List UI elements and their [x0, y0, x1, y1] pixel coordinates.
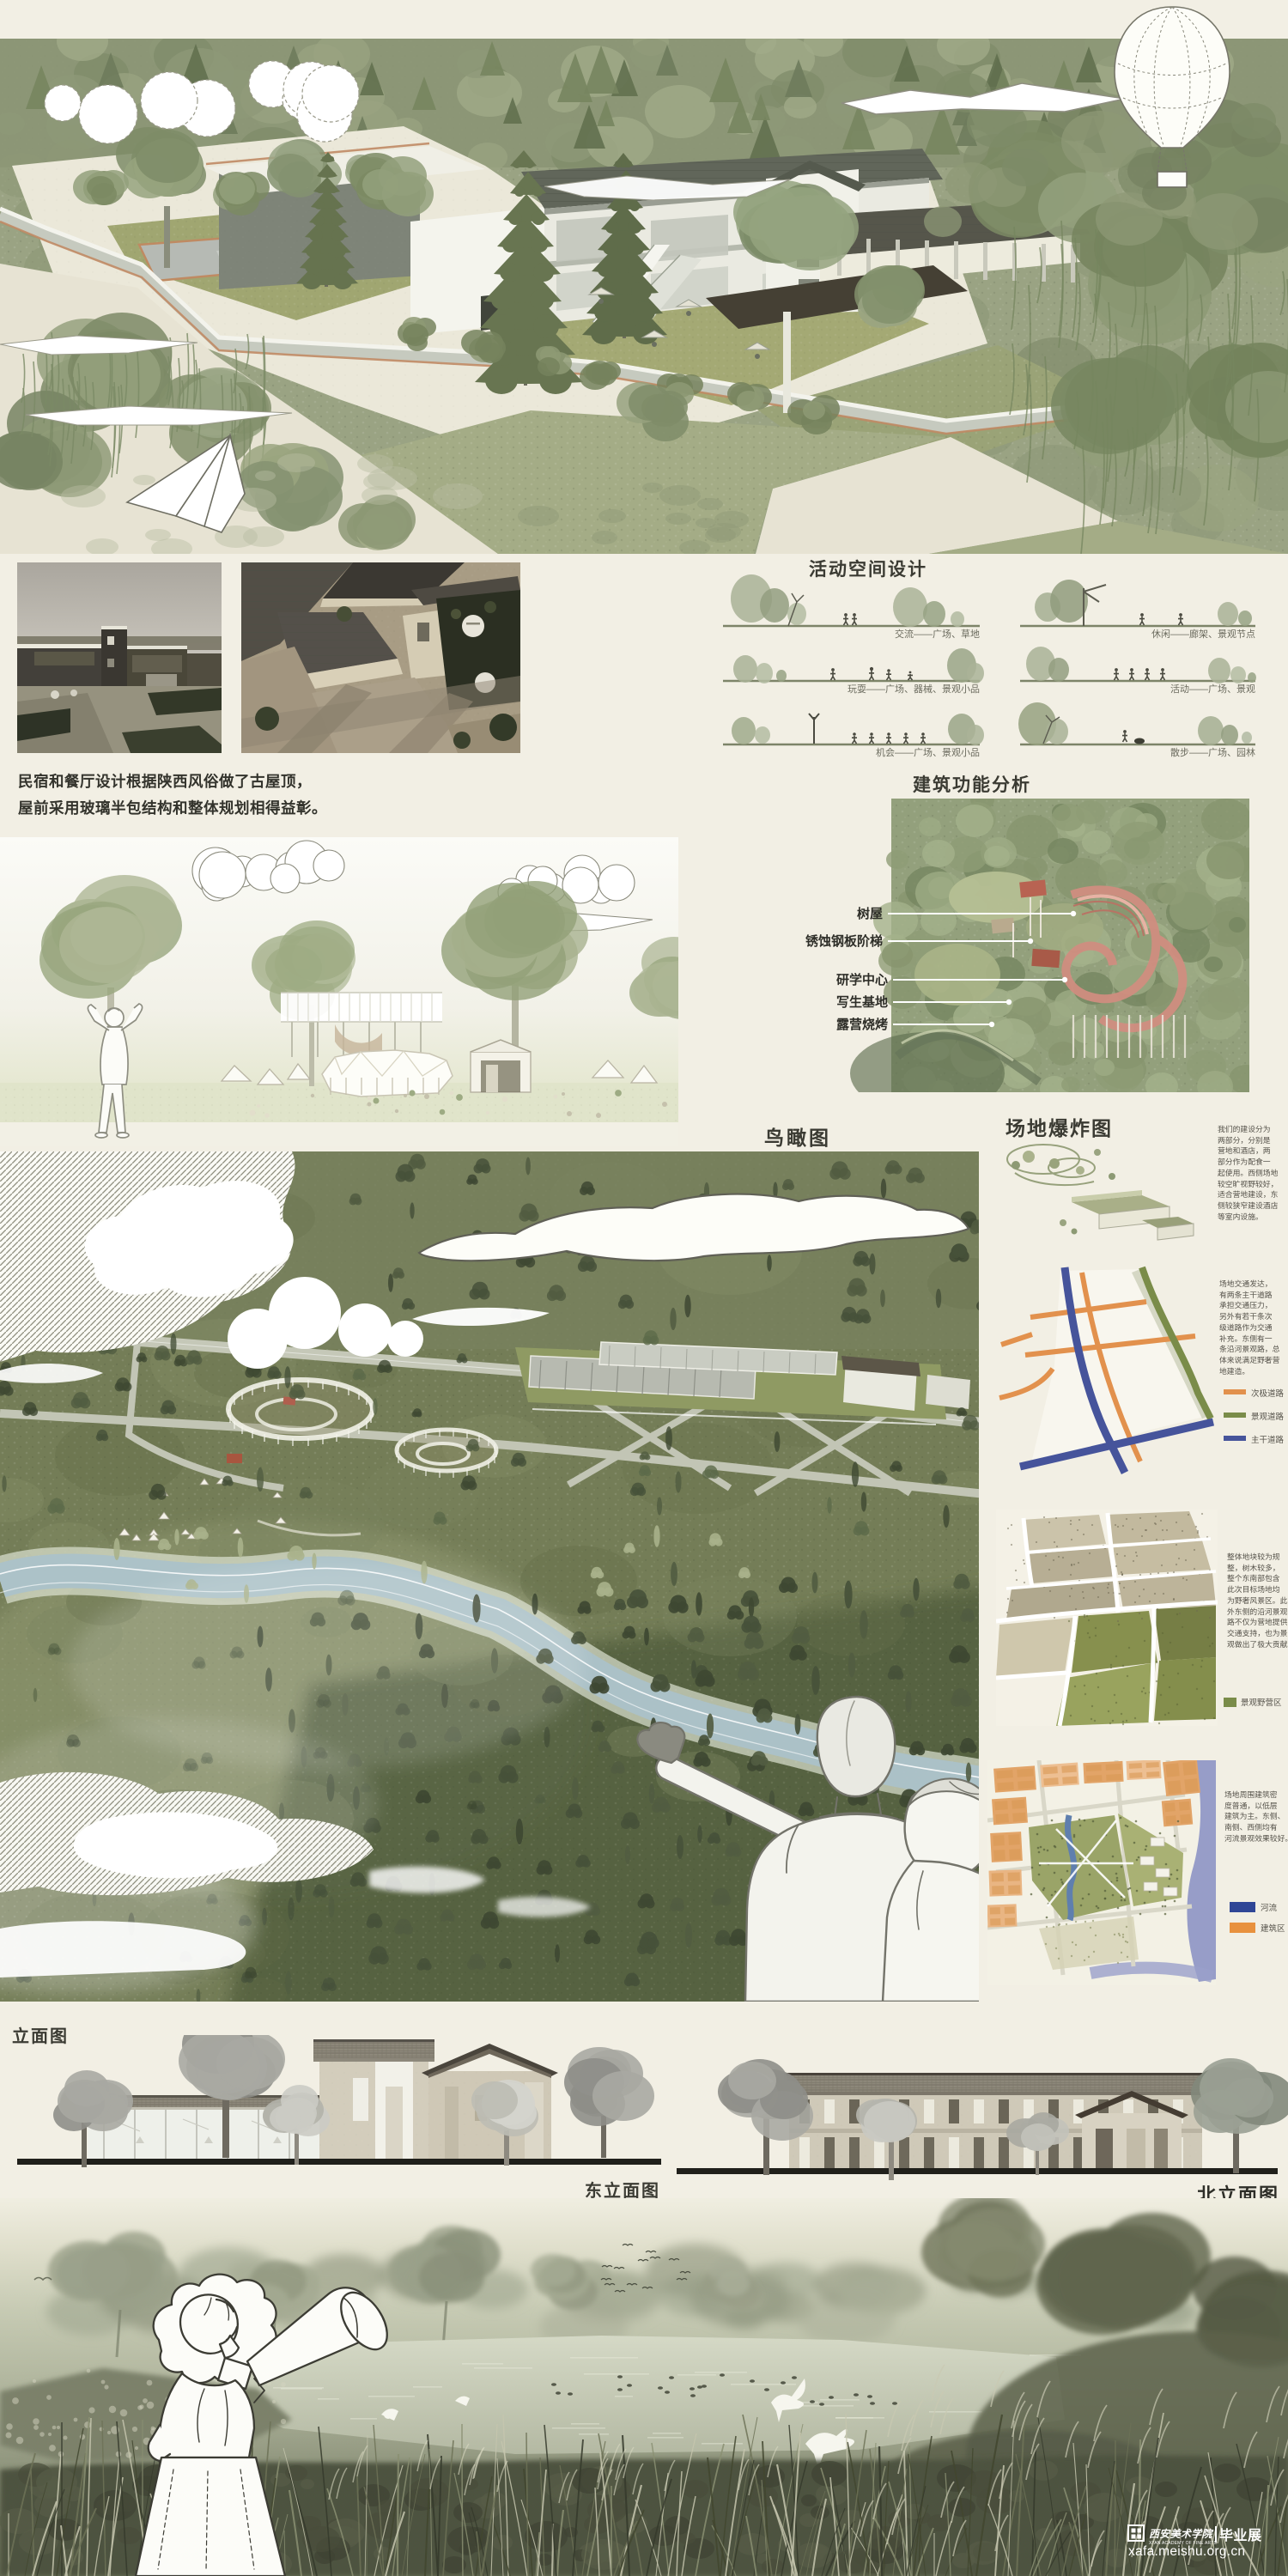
- svg-text:研学中心: 研学中心: [836, 972, 888, 987]
- svg-text:写生基地: 写生基地: [836, 994, 888, 1010]
- svg-text:次极道路: 次极道路: [1251, 1388, 1285, 1399]
- svg-text:交流——广场、草地: 交流——广场、草地: [895, 628, 980, 640]
- svg-text:景观野营区: 景观野营区: [1241, 1698, 1282, 1708]
- svg-text:毕业展: 毕业展: [1219, 2528, 1262, 2543]
- svg-text:锈蚀钢板阶梯: 锈蚀钢板阶梯: [805, 933, 883, 949]
- svg-text:建筑区: 建筑区: [1261, 1923, 1285, 1934]
- svg-text:机会——广场、景观小品: 机会——广场、景观小品: [876, 746, 980, 758]
- svg-text:休闲——廊架、景观节点: 休闲——廊架、景观节点: [1151, 628, 1255, 640]
- svg-text:树屋: 树屋: [857, 906, 883, 921]
- svg-text:景观道路: 景观道路: [1251, 1412, 1285, 1422]
- svg-text:西安美术学院: 西安美术学院: [1149, 2528, 1214, 2540]
- svg-text:散步——广场、园林: 散步——广场、园林: [1170, 746, 1255, 758]
- svg-text:露营烧烤: 露营烧烤: [836, 1017, 888, 1032]
- svg-text:活动——广场、景观: 活动——广场、景观: [1170, 683, 1255, 695]
- svg-text:河流: 河流: [1261, 1903, 1278, 1913]
- svg-text:主干道路: 主干道路: [1251, 1435, 1285, 1445]
- svg-text:玩耍——广场、器械、景观小品: 玩耍——广场、器械、景观小品: [848, 683, 980, 695]
- svg-text:xafa.meishu.org.cn: xafa.meishu.org.cn: [1128, 2544, 1245, 2559]
- svg-text:活动空间设计: 活动空间设计: [809, 559, 927, 580]
